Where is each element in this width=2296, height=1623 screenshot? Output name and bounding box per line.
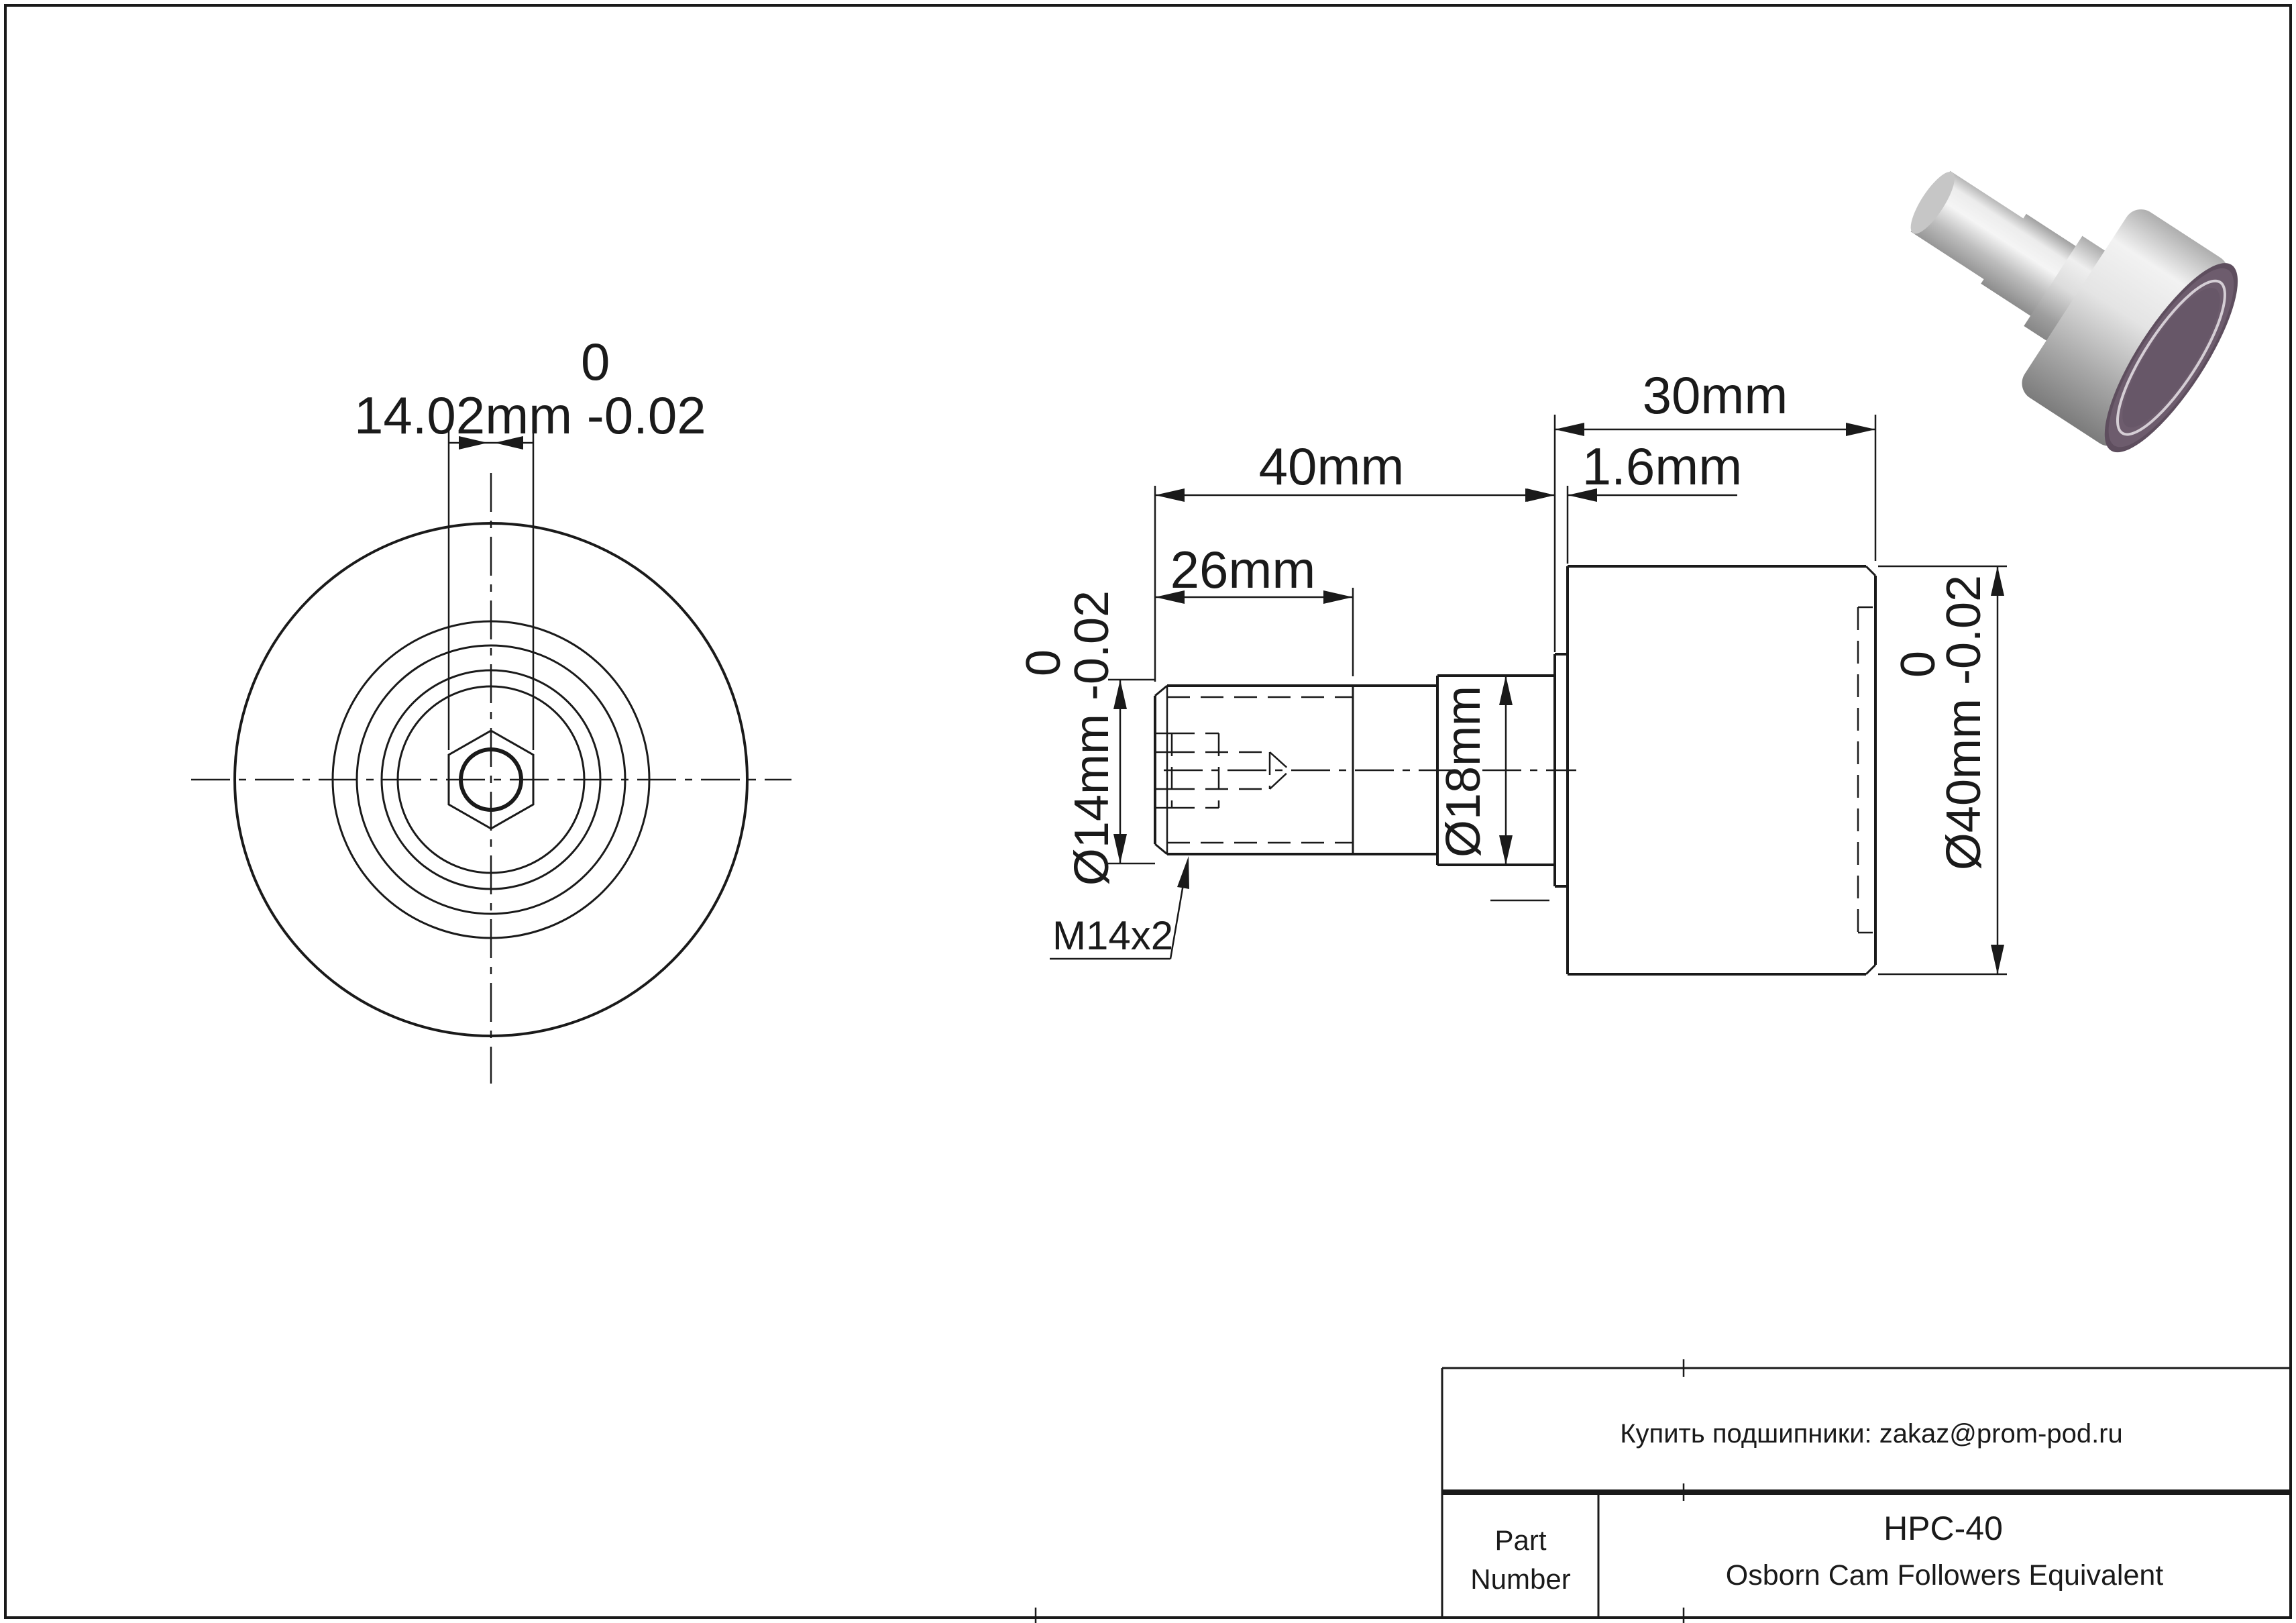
iso-render [1863,104,2260,469]
title-block: Купить подшипники: zakaz@prom-pod.ru Par… [1442,1359,2291,1618]
dim-collar-dia-label: Ø18mm [1437,686,1490,857]
side-view: 26mm 40mm 1.6mm 30mm [1017,366,2007,974]
arrowhead [1527,488,1555,502]
drawing-sheet: 14.02mm -0.02 0 [0,0,2296,1623]
chamfer-line [1866,566,1875,576]
arrowhead [1499,676,1513,705]
dim-roller-dia: Ø40mm -0.02 0 [1878,566,2007,974]
dim-stud-to-flange-label: 40mm [1259,437,1405,496]
arrowhead [1991,945,2004,974]
dim-stud-dia-tol-upper: 0 [1017,649,1071,676]
dim-roller-dia-label: Ø40mm -0.02 [1937,575,1991,870]
socket-cone-line [1270,752,1290,770]
roller [1568,566,1875,974]
arrowhead [1323,590,1353,604]
dim-roller-dia-tol-upper: 0 [1892,651,1945,678]
arrowhead [1991,566,2004,596]
dim-thread-length: 26mm [1155,540,1353,676]
dim-front-width-tol-upper: 0 [581,332,610,391]
chamfer-line [1155,686,1167,696]
dim-stud-dia: Ø14mm -0.02 0 [1017,590,1155,886]
dim-overall-roller-label: 30mm [1643,366,1788,425]
dim-flange-width: 1.6mm [1527,437,1742,564]
thread-spec-label: M14x2 [1052,913,1173,958]
part-description: Osborn Cam Followers Equivalent [1726,1559,2163,1591]
socket-cone-line [1270,770,1290,789]
part-number-value: HPC-40 [1883,1510,2003,1547]
chamfer-line [1155,844,1167,854]
chamfer-line [1866,965,1875,974]
dim-stud-dia-label: Ø14mm -0.02 [1065,590,1119,886]
front-view: 14.02mm -0.02 0 [191,332,791,1084]
arrowhead [1499,835,1513,865]
contact-text: Купить подшипники: zakaz@prom-pod.ru [1620,1419,2123,1449]
dim-flange-width-label: 1.6mm [1582,437,1742,496]
dim-front-width-label: 14.02mm -0.02 [354,386,706,445]
arrowhead [1555,423,1584,436]
part-number-heading-line1: Part [1494,1524,1546,1556]
dim-front-width: 14.02mm -0.02 0 [354,332,706,750]
arrowhead [1155,488,1185,502]
arrowhead [1846,423,1875,436]
dim-thread-length-label: 26mm [1170,540,1316,599]
part-number-heading-line2: Number [1470,1563,1570,1595]
leader-arrowhead [1177,856,1189,889]
dim-collar-dia: Ø18mm [1437,676,1549,900]
